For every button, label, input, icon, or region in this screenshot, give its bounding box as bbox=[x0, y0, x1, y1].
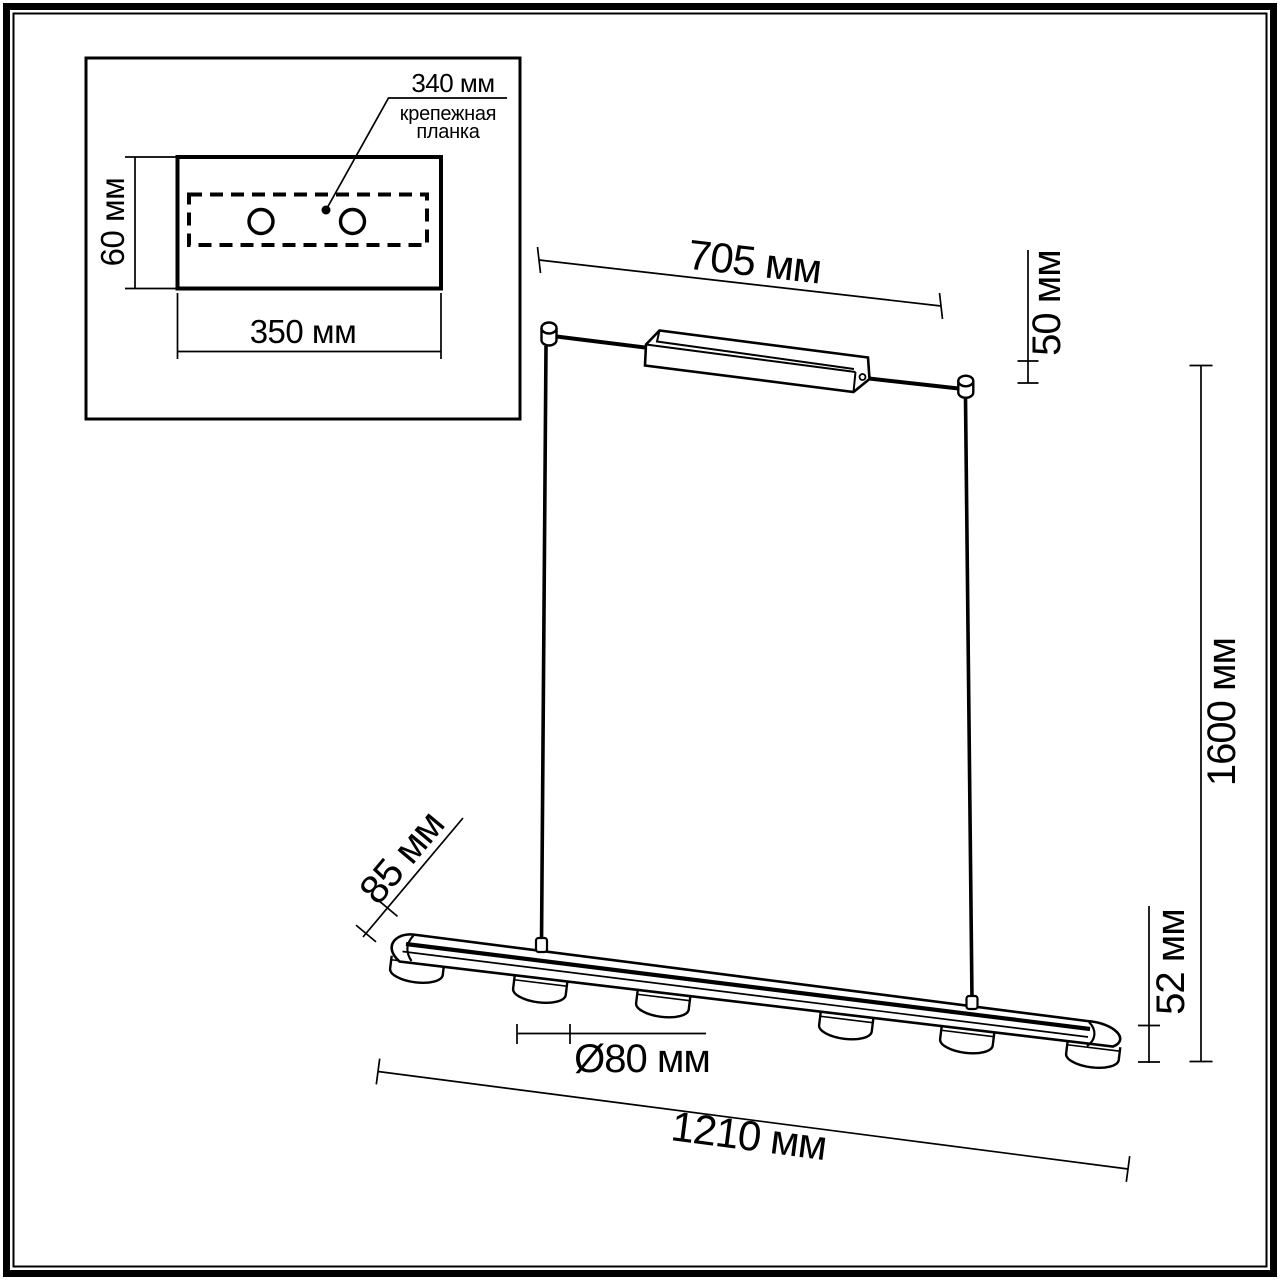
bar-body bbox=[392, 934, 1121, 1046]
suspension-pin-left bbox=[542, 323, 557, 346]
canopy-drop-label: 50 мм bbox=[1025, 250, 1069, 356]
bar-height-label: 52 мм bbox=[1149, 909, 1193, 1015]
canopy-length-label: 705 мм bbox=[686, 231, 824, 293]
cable-mount-left bbox=[536, 938, 547, 952]
bar-length-label: 1210 мм bbox=[669, 1102, 830, 1169]
plate-height-label: 60 мм bbox=[94, 178, 131, 267]
technical-drawing: 340 мм крепежная планка 60 мм 350 мм bbox=[0, 0, 1280, 1280]
light-bar bbox=[389, 934, 1120, 1070]
cable-right bbox=[966, 398, 973, 1000]
suspension-height-label: 1600 мм bbox=[1200, 638, 1244, 786]
mounting-bracket-dashed-outline bbox=[189, 195, 427, 246]
canopy-box bbox=[645, 331, 870, 393]
dim-60-lines bbox=[125, 157, 176, 289]
plate-width-label: 350 мм bbox=[250, 313, 357, 350]
frame bbox=[7, 7, 1274, 1274]
frame-outer-border bbox=[7, 7, 1274, 1274]
inset-mounting-plate: 340 мм крепежная планка 60 мм 350 мм bbox=[86, 58, 520, 419]
spot-diameter-label: Ø80 мм bbox=[574, 1037, 710, 1081]
suspension-cables bbox=[542, 346, 973, 1000]
mounting-plate-outline bbox=[178, 157, 442, 289]
bar-front-edge-line bbox=[403, 952, 1089, 1038]
bracket-name-line2: планка bbox=[416, 121, 480, 143]
bracket-length-label: 340 мм bbox=[411, 68, 494, 98]
cable-mount-right bbox=[967, 996, 978, 1009]
wire-left bbox=[557, 337, 646, 348]
bar-top-band bbox=[406, 944, 1090, 1029]
canopy-outline bbox=[645, 331, 870, 393]
mounting-hole-left bbox=[249, 210, 273, 234]
bar-side-label: 85 мм bbox=[351, 803, 453, 912]
canopy-assembly bbox=[542, 323, 974, 398]
mounting-hole-right bbox=[341, 210, 365, 234]
suspension-pin-right bbox=[958, 376, 973, 398]
wire-right bbox=[869, 379, 959, 389]
cable-left bbox=[542, 346, 547, 944]
